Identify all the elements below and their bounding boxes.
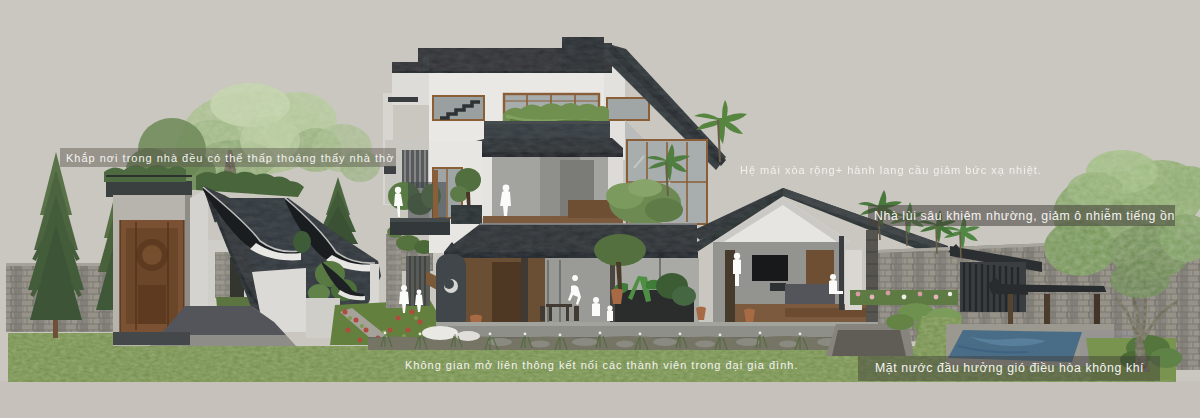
svg-text:Khắp nơi trong nhà đều có thể: Khắp nơi trong nhà đều có thể thấp thoán…: [66, 152, 394, 164]
svg-text:Mặt nước đầu hưởng gió điều hò: Mặt nước đầu hưởng gió điều hòa không kh…: [875, 361, 1144, 375]
svg-text:Không gian mở liên thông kết n: Không gian mở liên thông kết nối các thà…: [405, 359, 798, 371]
svg-text:Hệ mái xòa rộng+ hành lang cầu: Hệ mái xòa rộng+ hành lang cầu giảm bức …: [740, 164, 1042, 176]
svg-text:Nhà lùi sâu khiêm nhường, giảm: Nhà lùi sâu khiêm nhường, giảm ô nhiễm t…: [874, 208, 1175, 223]
